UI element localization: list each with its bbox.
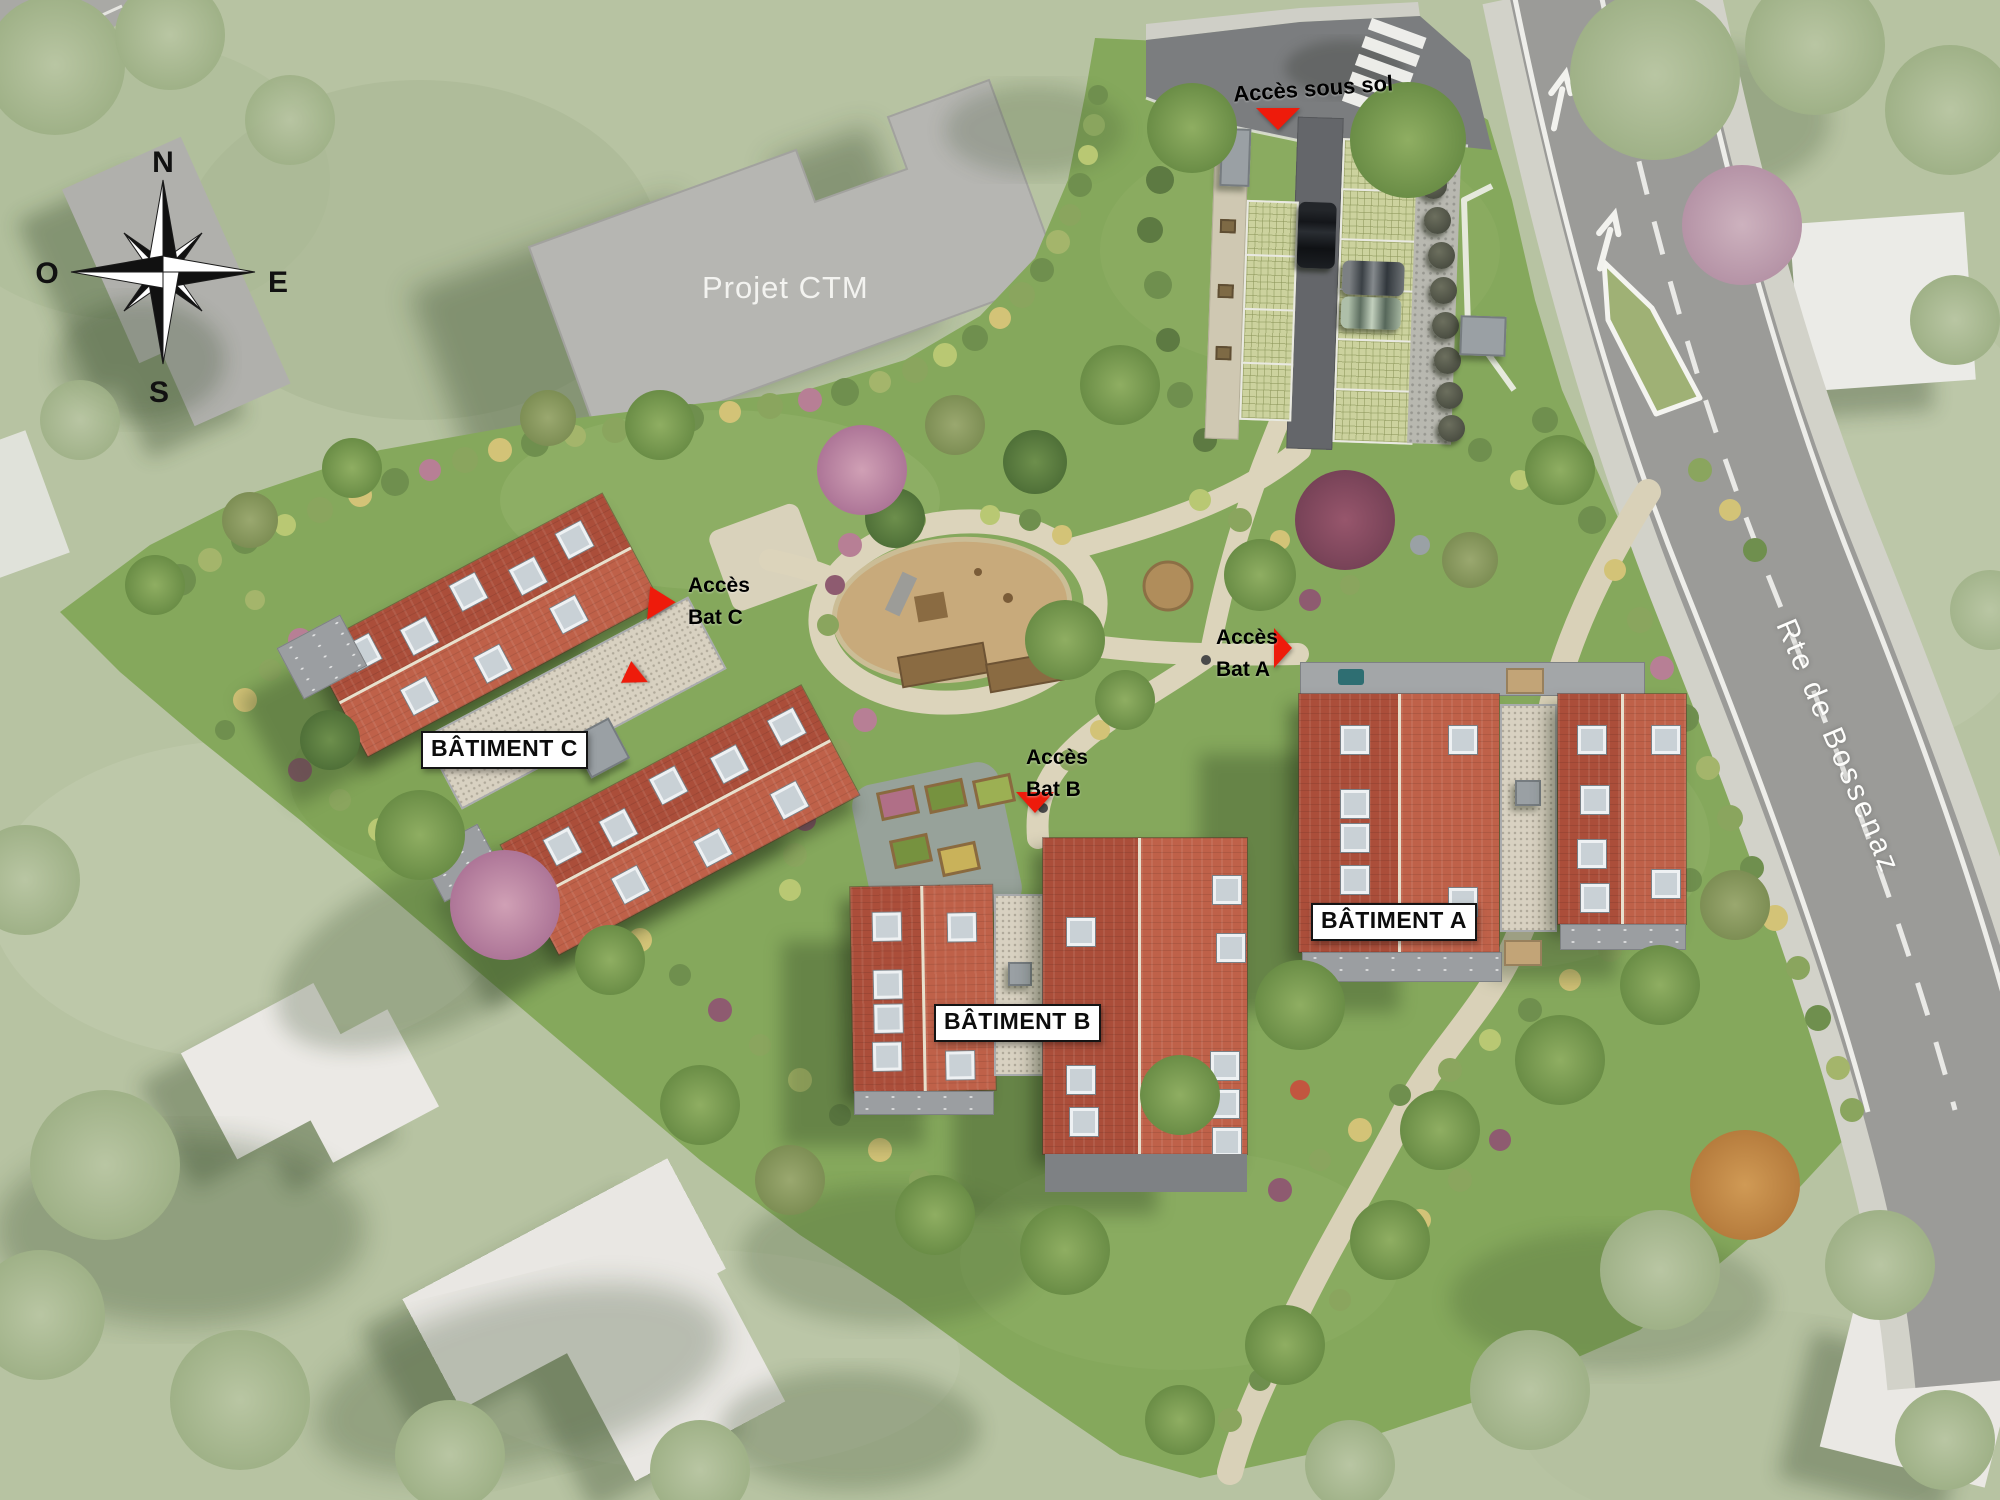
access-sous-sol-arrow-icon: [1256, 108, 1300, 130]
car-driving: [1297, 202, 1337, 269]
building-b-terraces: [854, 1091, 994, 1115]
access-bat-c-label: AccèsBat C: [688, 570, 750, 633]
building-a-south-terrace: [1302, 952, 1502, 982]
compass-rose: N O E S: [35, 140, 295, 420]
building-b-roof-west: [850, 885, 996, 1092]
building-b-roof-east: [1043, 838, 1247, 1154]
projet-ctm-label: Projet CTM: [702, 272, 869, 303]
parking-shed: [1219, 128, 1251, 187]
building-b-link-roof: [994, 894, 1044, 1076]
building-a-north-terrace: [1300, 662, 1645, 696]
building-a-link-roof: [1500, 704, 1557, 932]
compass-label-south: S: [149, 376, 169, 409]
parked-car: [1338, 669, 1364, 685]
compass-label-west: O: [35, 257, 58, 290]
access-bat-a-label: AccèsBat A: [1216, 622, 1278, 685]
parking-shed: [1459, 315, 1506, 357]
building-c-label: BÂTIMENT C: [421, 731, 588, 769]
picnic-table: [1506, 668, 1544, 694]
building-a-south-terrace: [1560, 924, 1686, 950]
building-a-roof-east: [1558, 694, 1686, 924]
site-plan-map: N O E S Projet CTM Rte de Bossenaz Accès…: [0, 0, 2000, 1500]
building-a-label: BÂTIMENT A: [1311, 903, 1477, 941]
compass-label-east: E: [268, 266, 288, 299]
compass-label-north: N: [152, 146, 174, 179]
car-parked: [1340, 296, 1401, 330]
building-b-label: BÂTIMENT B: [934, 1004, 1101, 1042]
access-bat-b-label: AccèsBat B: [1026, 742, 1088, 805]
car-parked: [1342, 260, 1405, 296]
picnic-table: [1504, 940, 1542, 966]
building-b-terraces: [1045, 1154, 1247, 1192]
